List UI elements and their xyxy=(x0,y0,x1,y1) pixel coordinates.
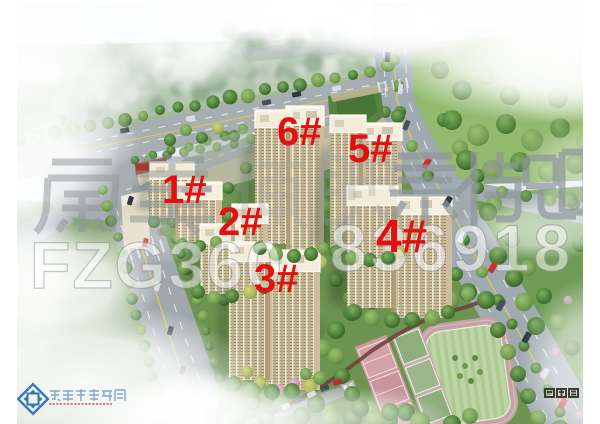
svg-text:3#: 3# xyxy=(254,257,299,301)
svg-text:4#: 4# xyxy=(376,210,427,262)
svg-text:2#: 2# xyxy=(218,200,263,244)
svg-text:6#: 6# xyxy=(277,110,322,154)
svg-text:1#: 1# xyxy=(162,168,207,212)
svg-text:836918: 836918 xyxy=(330,211,574,285)
svg-text:5#: 5# xyxy=(348,127,393,171)
